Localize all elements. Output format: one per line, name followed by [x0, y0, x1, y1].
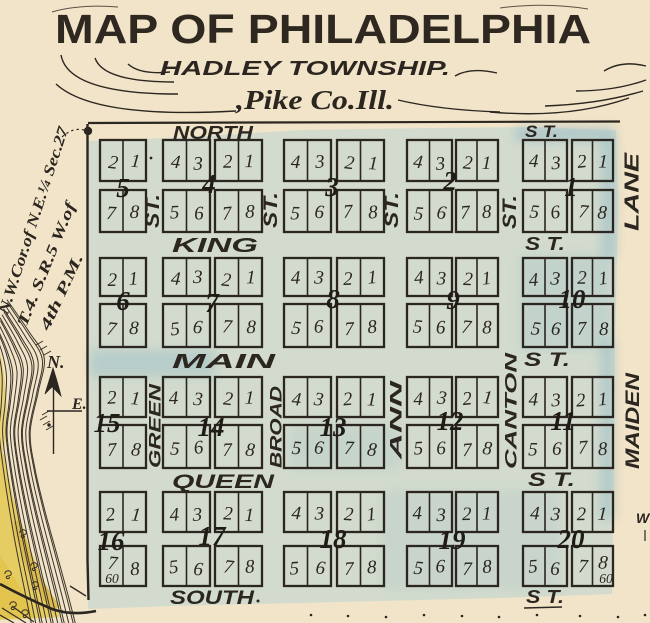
svg-text:4: 4 — [530, 503, 541, 524]
svg-text:4: 4 — [170, 268, 181, 290]
svg-text:6: 6 — [194, 203, 205, 225]
svg-text:17: 17 — [199, 521, 228, 551]
svg-text:E.: E. — [71, 396, 87, 413]
svg-text:1: 1 — [244, 151, 254, 172]
svg-text:5: 5 — [412, 316, 423, 338]
svg-text:3: 3 — [192, 389, 204, 411]
svg-text:5: 5 — [413, 203, 424, 225]
svg-text:6: 6 — [552, 439, 562, 460]
svg-text:4: 4 — [201, 169, 216, 199]
svg-text:18: 18 — [320, 524, 348, 554]
svg-text:2: 2 — [343, 504, 354, 526]
svg-text:5: 5 — [291, 438, 302, 460]
svg-text:11: 11 — [550, 406, 576, 436]
svg-text:LANE: LANE — [621, 152, 643, 231]
svg-text:MAIDEN: MAIDEN — [623, 371, 644, 469]
svg-text:S T.: S T. — [525, 234, 565, 254]
svg-text:3: 3 — [550, 153, 562, 175]
svg-text:MAIN: MAIN — [172, 351, 276, 373]
svg-text:1: 1 — [482, 504, 492, 525]
svg-text:8: 8 — [244, 556, 255, 578]
svg-text:ANN: ANN — [387, 379, 405, 462]
svg-text:60: 60 — [599, 571, 613, 586]
svg-text:5: 5 — [413, 558, 425, 580]
svg-text:1: 1 — [367, 267, 378, 289]
svg-text:12: 12 — [437, 406, 464, 436]
svg-text:2: 2 — [343, 269, 354, 290]
svg-text:8: 8 — [597, 439, 608, 461]
svg-text:8: 8 — [599, 319, 609, 340]
svg-text:1: 1 — [245, 388, 255, 409]
svg-text:3: 3 — [549, 504, 561, 526]
svg-text:2: 2 — [576, 504, 586, 525]
svg-text:4: 4 — [169, 504, 180, 526]
svg-text:1: 1 — [368, 153, 378, 174]
svg-text:13: 13 — [320, 412, 347, 442]
svg-text:2: 2 — [223, 151, 234, 172]
svg-text:6: 6 — [435, 556, 445, 577]
svg-text:5: 5 — [169, 202, 180, 224]
svg-text:4: 4 — [412, 503, 423, 524]
svg-text:1: 1 — [367, 389, 377, 410]
svg-text:S T.: S T. — [525, 122, 558, 141]
svg-text:1: 1 — [130, 151, 141, 173]
svg-text:6: 6 — [550, 559, 560, 580]
svg-text:KING: KING — [172, 235, 258, 257]
svg-text:60: 60 — [105, 571, 119, 586]
svg-text:5: 5 — [529, 201, 540, 223]
svg-text:2: 2 — [463, 269, 474, 291]
svg-text:2: 2 — [106, 387, 117, 409]
svg-text:,Pike Co.Ill.: ,Pike Co.Ill. — [235, 85, 394, 115]
svg-text:8: 8 — [597, 202, 608, 223]
svg-text:6: 6 — [436, 317, 446, 338]
svg-text:2: 2 — [462, 504, 472, 525]
svg-text:HADLEY TOWNSHIP.: HADLEY TOWNSHIP. — [160, 58, 450, 80]
svg-text:3: 3 — [436, 268, 447, 289]
svg-text:10: 10 — [559, 284, 587, 314]
svg-text:W: W — [636, 510, 650, 526]
svg-text:5: 5 — [116, 173, 130, 203]
svg-text:8: 8 — [246, 317, 256, 338]
svg-text:19: 19 — [439, 525, 467, 555]
svg-text:8: 8 — [245, 202, 255, 223]
svg-text:8: 8 — [368, 202, 379, 224]
svg-text:16: 16 — [98, 526, 126, 556]
svg-text:5: 5 — [289, 558, 300, 580]
svg-text:8: 8 — [129, 318, 140, 339]
svg-text:ST.: ST. — [500, 195, 521, 229]
svg-text:5: 5 — [527, 556, 538, 578]
svg-text:ST.: ST. — [382, 192, 403, 228]
svg-text:1: 1 — [130, 388, 141, 410]
svg-text:2: 2 — [442, 166, 457, 196]
svg-text:3: 3 — [314, 503, 325, 524]
svg-text:BROAD: BROAD — [267, 386, 285, 468]
svg-text:S T.: S T. — [528, 470, 575, 491]
svg-text:QUEEN: QUEEN — [172, 471, 275, 493]
svg-text:5: 5 — [290, 203, 300, 224]
svg-text:3: 3 — [192, 267, 203, 288]
svg-text:S T.: S T. — [524, 350, 570, 371]
svg-text:8: 8 — [326, 284, 340, 314]
svg-text:8: 8 — [481, 201, 492, 223]
svg-text:20: 20 — [557, 524, 586, 554]
svg-text:6: 6 — [314, 316, 324, 337]
svg-text:N.: N. — [46, 352, 65, 372]
svg-text:1: 1 — [245, 505, 255, 526]
svg-text:6: 6 — [314, 202, 325, 224]
svg-text:3: 3 — [313, 151, 325, 173]
svg-text:ST.: ST. — [261, 192, 282, 228]
svg-text:SOUTH: SOUTH — [170, 587, 255, 609]
svg-text:8: 8 — [482, 317, 492, 338]
svg-text:5: 5 — [413, 438, 424, 460]
svg-text:4: 4 — [413, 389, 423, 410]
svg-text:7: 7 — [205, 288, 220, 318]
svg-text:GREEN: GREEN — [146, 382, 164, 468]
svg-text:8: 8 — [129, 202, 140, 223]
svg-text:4: 4 — [528, 389, 538, 410]
svg-text:4: 4 — [291, 268, 301, 289]
svg-text:4: 4 — [290, 152, 301, 173]
svg-text:5: 5 — [528, 439, 538, 460]
svg-text:1: 1 — [598, 152, 608, 173]
svg-text:S T.: S T. — [526, 587, 564, 607]
svg-text:5: 5 — [170, 439, 181, 461]
svg-text:1: 1 — [597, 504, 607, 525]
svg-text:3: 3 — [324, 172, 339, 202]
svg-text:1: 1 — [246, 267, 256, 288]
svg-text:4: 4 — [291, 503, 302, 525]
svg-text:9: 9 — [446, 285, 460, 315]
svg-text:6: 6 — [116, 286, 130, 316]
svg-text:4: 4 — [529, 151, 540, 172]
svg-text:MAP OF PHILADELPHIA: MAP OF PHILADELPHIA — [55, 6, 591, 52]
svg-text:7: 7 — [462, 559, 473, 580]
svg-text:6: 6 — [436, 438, 447, 459]
svg-text:4: 4 — [169, 388, 179, 409]
svg-text:14: 14 — [198, 412, 225, 442]
svg-text:1: 1 — [481, 268, 493, 290]
svg-text:1: 1 — [482, 153, 492, 174]
svg-text:1: 1 — [597, 389, 608, 411]
svg-text:CANTON: CANTON — [502, 351, 520, 469]
svg-text:8: 8 — [366, 557, 377, 578]
svg-text:3: 3 — [313, 267, 325, 289]
svg-text:15: 15 — [94, 408, 121, 438]
svg-text:3: 3 — [435, 505, 446, 526]
svg-text:1: 1 — [564, 172, 578, 202]
svg-text:4: 4 — [528, 270, 539, 292]
